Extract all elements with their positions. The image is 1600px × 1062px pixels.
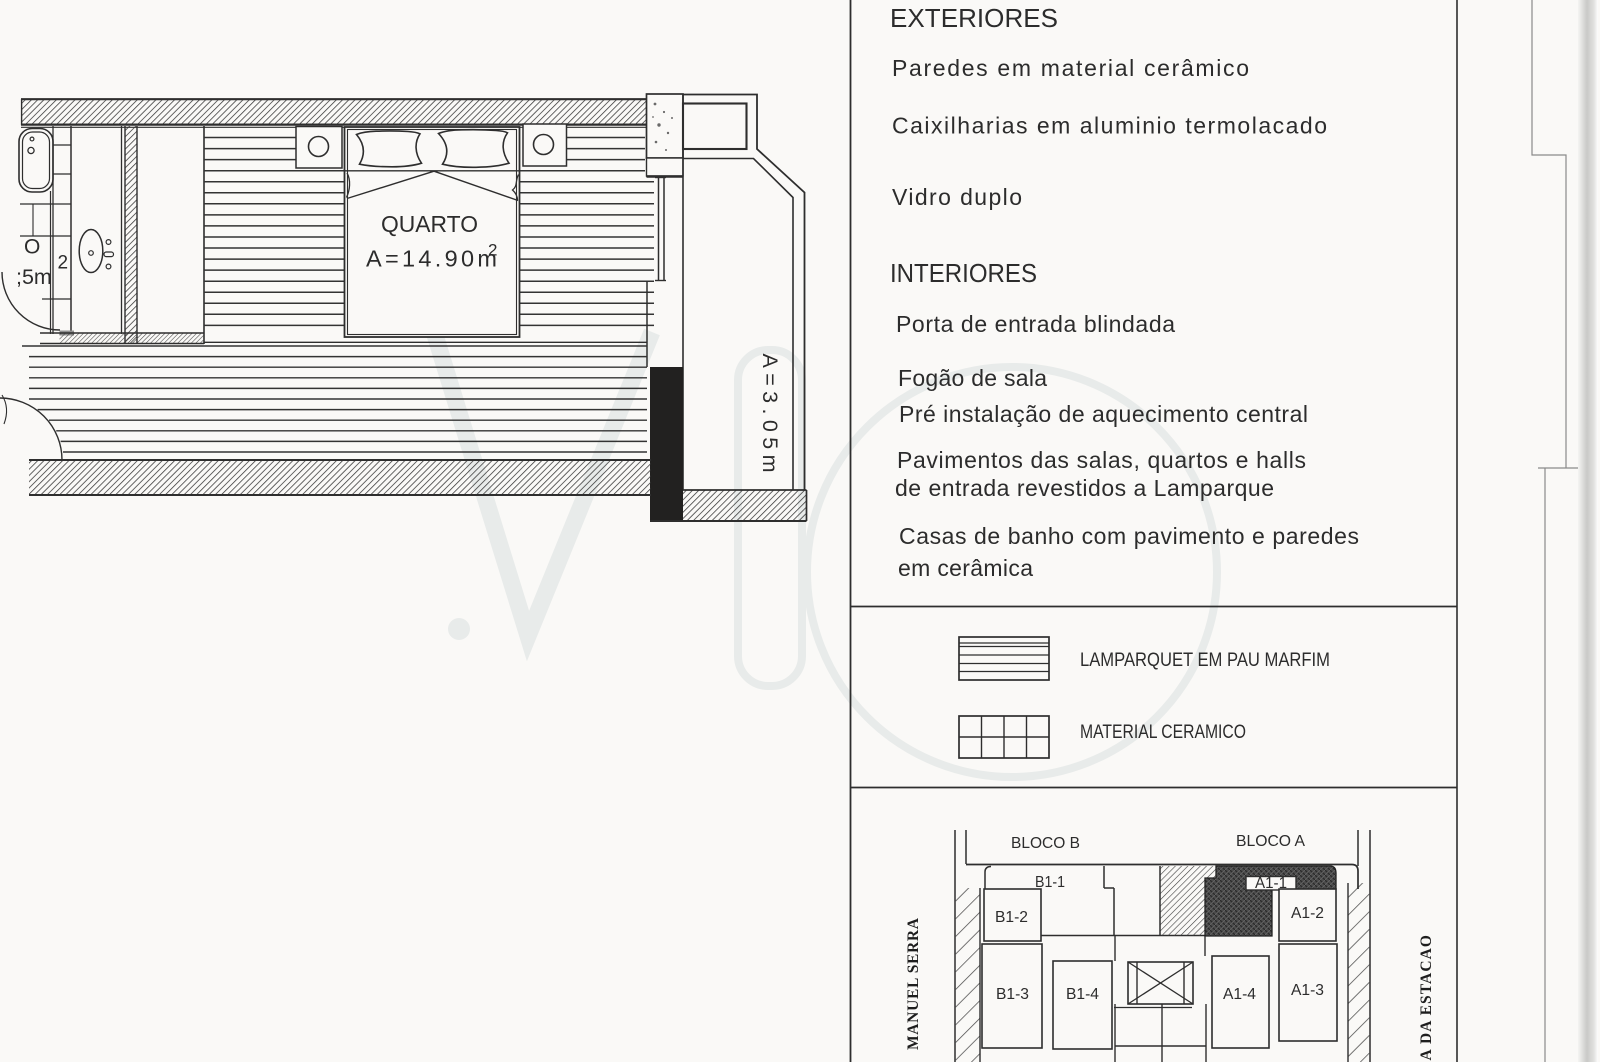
- svg-text:B1-3: B1-3: [996, 986, 1029, 1003]
- svg-text:A1-2: A1-2: [1291, 905, 1324, 922]
- svg-text:Vidro duplo: Vidro duplo: [892, 184, 1022, 210]
- svg-text:QUARTO: QUARTO: [381, 211, 478, 237]
- svg-text:2: 2: [488, 241, 497, 260]
- svg-text:Pré instalação de aquecimento: Pré instalação de aquecimento central: [899, 401, 1308, 427]
- svg-text:LAMPARQUET EM PAU MARFIM: LAMPARQUET EM PAU MARFIM: [1080, 649, 1330, 671]
- svg-text:2: 2: [58, 253, 69, 274]
- svg-text:;5m: ;5m: [16, 265, 52, 289]
- svg-text:de entrada revestidos a Lampar: de entrada revestidos a Lamparque: [895, 475, 1274, 501]
- svg-text:Porta de entrada blindada: Porta de entrada blindada: [896, 311, 1175, 337]
- svg-text:MATERIAL CERAMICO: MATERIAL CERAMICO: [1080, 721, 1246, 743]
- svg-text:Pavimentos das salas, quartos: Pavimentos das salas, quartos e halls: [897, 447, 1306, 473]
- svg-text:A1-4: A1-4: [1223, 986, 1256, 1003]
- svg-text:A1-3: A1-3: [1291, 982, 1324, 999]
- svg-text:BLOCO B: BLOCO B: [1011, 835, 1080, 852]
- svg-text:A=14.90m: A=14.90m: [366, 246, 497, 272]
- svg-text:BLOCO A: BLOCO A: [1236, 833, 1305, 850]
- svg-text:INTERIORES: INTERIORES: [890, 258, 1037, 288]
- svg-text:Casas de banho com pavimento e: Casas de banho com pavimento e paredes: [899, 523, 1359, 549]
- svg-text:MANUEL SERRA: MANUEL SERRA: [905, 917, 922, 1050]
- svg-text:O: O: [24, 236, 40, 259]
- svg-text:RUA DA ESTACAO: RUA DA ESTACAO: [1418, 935, 1435, 1062]
- svg-text:Fogão de sala: Fogão de sala: [898, 365, 1047, 391]
- svg-text:Caixilharias em aluminio termo: Caixilharias em aluminio termolacado: [892, 113, 1327, 139]
- svg-text:em cerâmica: em cerâmica: [898, 555, 1033, 581]
- svg-text:Paredes em material cerâmico: Paredes em material cerâmico: [892, 55, 1249, 81]
- svg-text:EXTERIORES: EXTERIORES: [890, 3, 1058, 33]
- svg-text:B1-4: B1-4: [1066, 986, 1099, 1003]
- svg-text:B1-2: B1-2: [995, 909, 1028, 926]
